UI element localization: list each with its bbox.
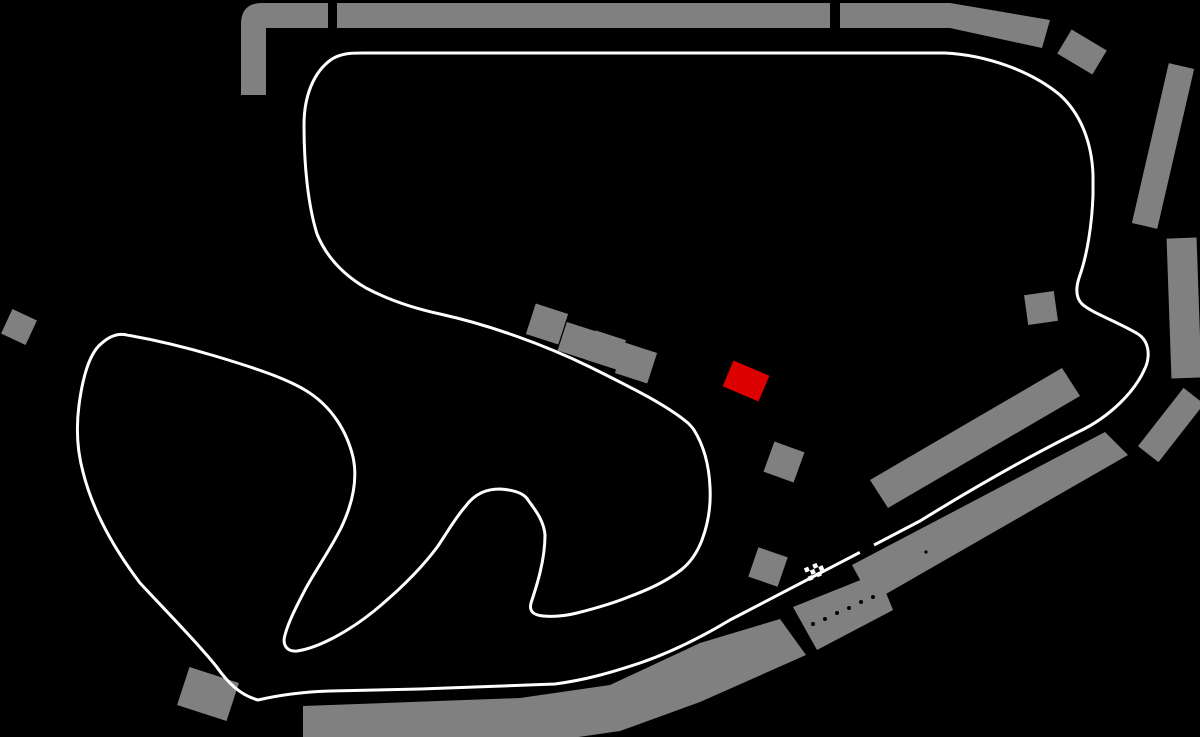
pit-garage-dot [871,595,875,599]
race-track-map [0,0,1200,737]
grandstand [1167,238,1200,379]
pit-garage-dot [835,611,839,615]
grandstand-mark-dot [924,550,927,553]
pit-garage-dot [847,606,851,610]
pit-garage-dot [811,622,815,626]
track-map-page [0,0,1200,737]
grandstand [337,3,830,28]
pit-garage-dot [823,617,827,621]
grandstand [1024,291,1058,325]
pit-garage-dot [859,600,863,604]
